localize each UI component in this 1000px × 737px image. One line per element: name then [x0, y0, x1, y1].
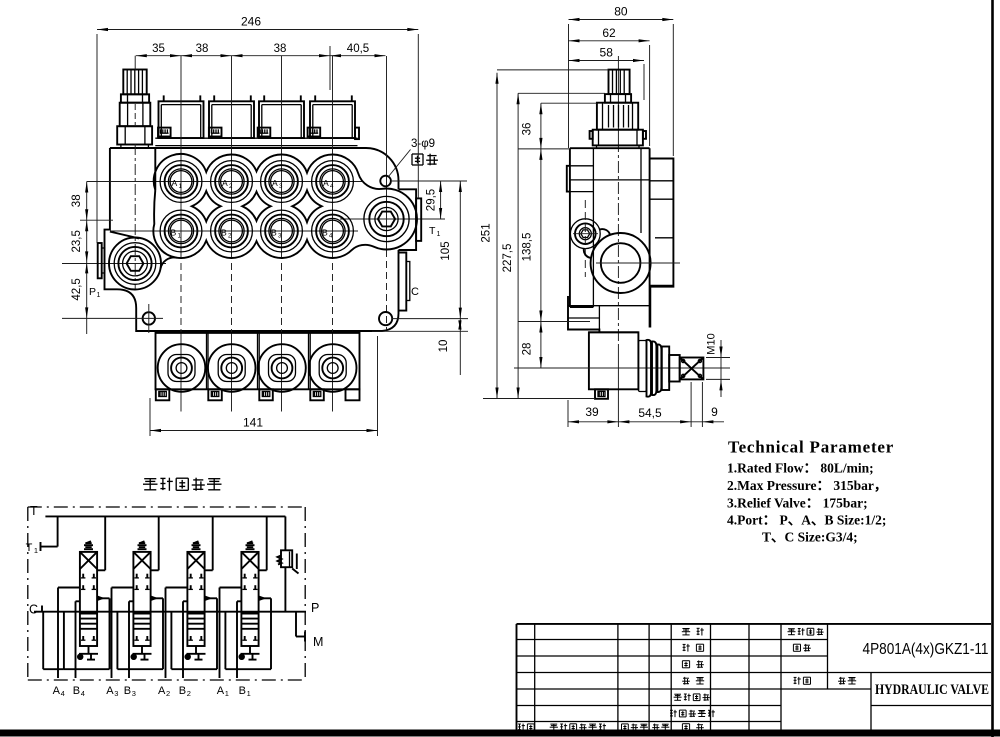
svg-text:HYDRAULIC VALVE: HYDRAULIC VALVE — [875, 682, 989, 698]
svg-text:23,5: 23,5 — [71, 230, 83, 252]
svg-text:2.Max Pressure： 315bar，: 2.Max Pressure： 315bar， — [727, 478, 887, 493]
svg-text:36: 36 — [522, 123, 534, 136]
svg-text:B: B — [171, 228, 177, 238]
svg-text:38: 38 — [71, 194, 83, 207]
svg-text:C: C — [411, 286, 419, 298]
svg-text:A: A — [106, 685, 114, 697]
svg-text:P: P — [89, 286, 96, 298]
svg-text:3.Relief Valve： 175bar;: 3.Relief Valve： 175bar; — [727, 496, 868, 511]
svg-text:B: B — [124, 685, 131, 697]
svg-text:3: 3 — [132, 689, 136, 698]
svg-text:3: 3 — [114, 689, 118, 698]
svg-text:1: 1 — [437, 231, 441, 238]
svg-text:B: B — [271, 228, 277, 238]
svg-text:2: 2 — [187, 689, 191, 698]
svg-text:A: A — [158, 685, 166, 697]
svg-text:1: 1 — [97, 292, 101, 299]
svg-text:105: 105 — [440, 241, 452, 260]
svg-text:1: 1 — [225, 689, 229, 698]
svg-text:4P801A(4x)GKZ1-11: 4P801A(4x)GKZ1-11 — [863, 641, 989, 658]
svg-text:4.Port： P、A、B Size:1/2;: 4.Port： P、A、B Size:1/2; — [727, 513, 886, 528]
svg-text:T: T — [26, 542, 33, 554]
svg-text:4: 4 — [61, 689, 65, 698]
svg-text:227,5: 227,5 — [502, 244, 514, 273]
svg-text:A: A — [272, 178, 278, 188]
svg-text:1.Rated Flow： 80L/min;: 1.Rated Flow： 80L/min; — [727, 461, 874, 476]
svg-text:B: B — [239, 685, 246, 697]
svg-text:B: B — [179, 685, 186, 697]
svg-text:B: B — [73, 685, 80, 697]
svg-text:29,5: 29,5 — [426, 189, 438, 211]
svg-text:B: B — [221, 228, 227, 238]
svg-text:80: 80 — [614, 5, 628, 19]
svg-text:1: 1 — [179, 183, 183, 190]
svg-text:10: 10 — [438, 340, 450, 353]
svg-text:3-φ9: 3-φ9 — [411, 138, 435, 150]
svg-text:A: A — [53, 685, 61, 697]
svg-text:C: C — [29, 603, 38, 617]
svg-text:P: P — [311, 601, 319, 615]
svg-text:138,5: 138,5 — [522, 233, 534, 262]
svg-text:1: 1 — [34, 546, 38, 555]
svg-text:58: 58 — [600, 46, 614, 60]
svg-text:T: T — [429, 225, 436, 237]
svg-text:62: 62 — [602, 26, 616, 40]
svg-text:38: 38 — [196, 43, 209, 55]
svg-text:Technical Parameter: Technical Parameter — [728, 438, 894, 457]
svg-text:M: M — [313, 635, 323, 649]
svg-text:3: 3 — [278, 233, 282, 240]
svg-text:42,5: 42,5 — [71, 278, 83, 300]
svg-text:246: 246 — [241, 15, 261, 29]
svg-text:28: 28 — [522, 343, 534, 356]
svg-text:2: 2 — [229, 183, 233, 190]
svg-text:1: 1 — [178, 233, 182, 240]
svg-text:4: 4 — [81, 689, 85, 698]
svg-text:4: 4 — [329, 233, 333, 240]
svg-text:2: 2 — [228, 233, 232, 240]
svg-text:1: 1 — [247, 689, 251, 698]
svg-text:251: 251 — [481, 223, 493, 242]
svg-text:3: 3 — [279, 183, 283, 190]
svg-text:A: A — [323, 178, 329, 188]
svg-text:4: 4 — [330, 183, 334, 190]
svg-text:39: 39 — [585, 405, 599, 419]
svg-text:35: 35 — [152, 43, 165, 55]
svg-text:141: 141 — [243, 416, 263, 430]
svg-text:B: B — [322, 228, 328, 238]
svg-text:2: 2 — [166, 689, 170, 698]
svg-text:40,5: 40,5 — [347, 43, 369, 55]
svg-text:A: A — [217, 685, 225, 697]
svg-text:A: A — [222, 178, 228, 188]
svg-text:9: 9 — [711, 405, 718, 419]
svg-text:T、C Size:G3/4;: T、C Size:G3/4; — [762, 530, 858, 545]
svg-text:38: 38 — [274, 43, 287, 55]
svg-text:M10: M10 — [706, 333, 718, 354]
svg-text:T: T — [30, 504, 38, 518]
svg-text:A: A — [172, 178, 178, 188]
svg-text:54,5: 54,5 — [638, 406, 662, 420]
